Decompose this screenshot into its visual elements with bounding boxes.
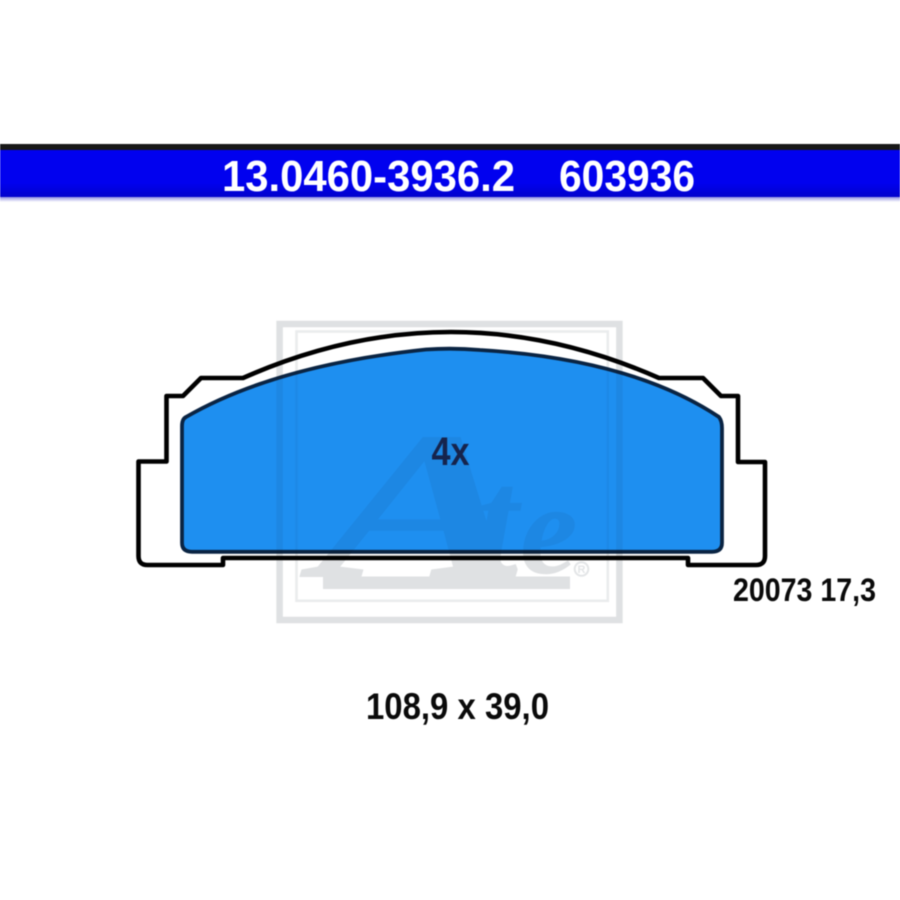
svg-text:20073 17,3: 20073 17,3 xyxy=(733,572,876,608)
svg-text:R: R xyxy=(578,564,586,576)
svg-text:108,9 x 39,0: 108,9 x 39,0 xyxy=(366,686,549,727)
svg-text:4x: 4x xyxy=(432,430,470,474)
